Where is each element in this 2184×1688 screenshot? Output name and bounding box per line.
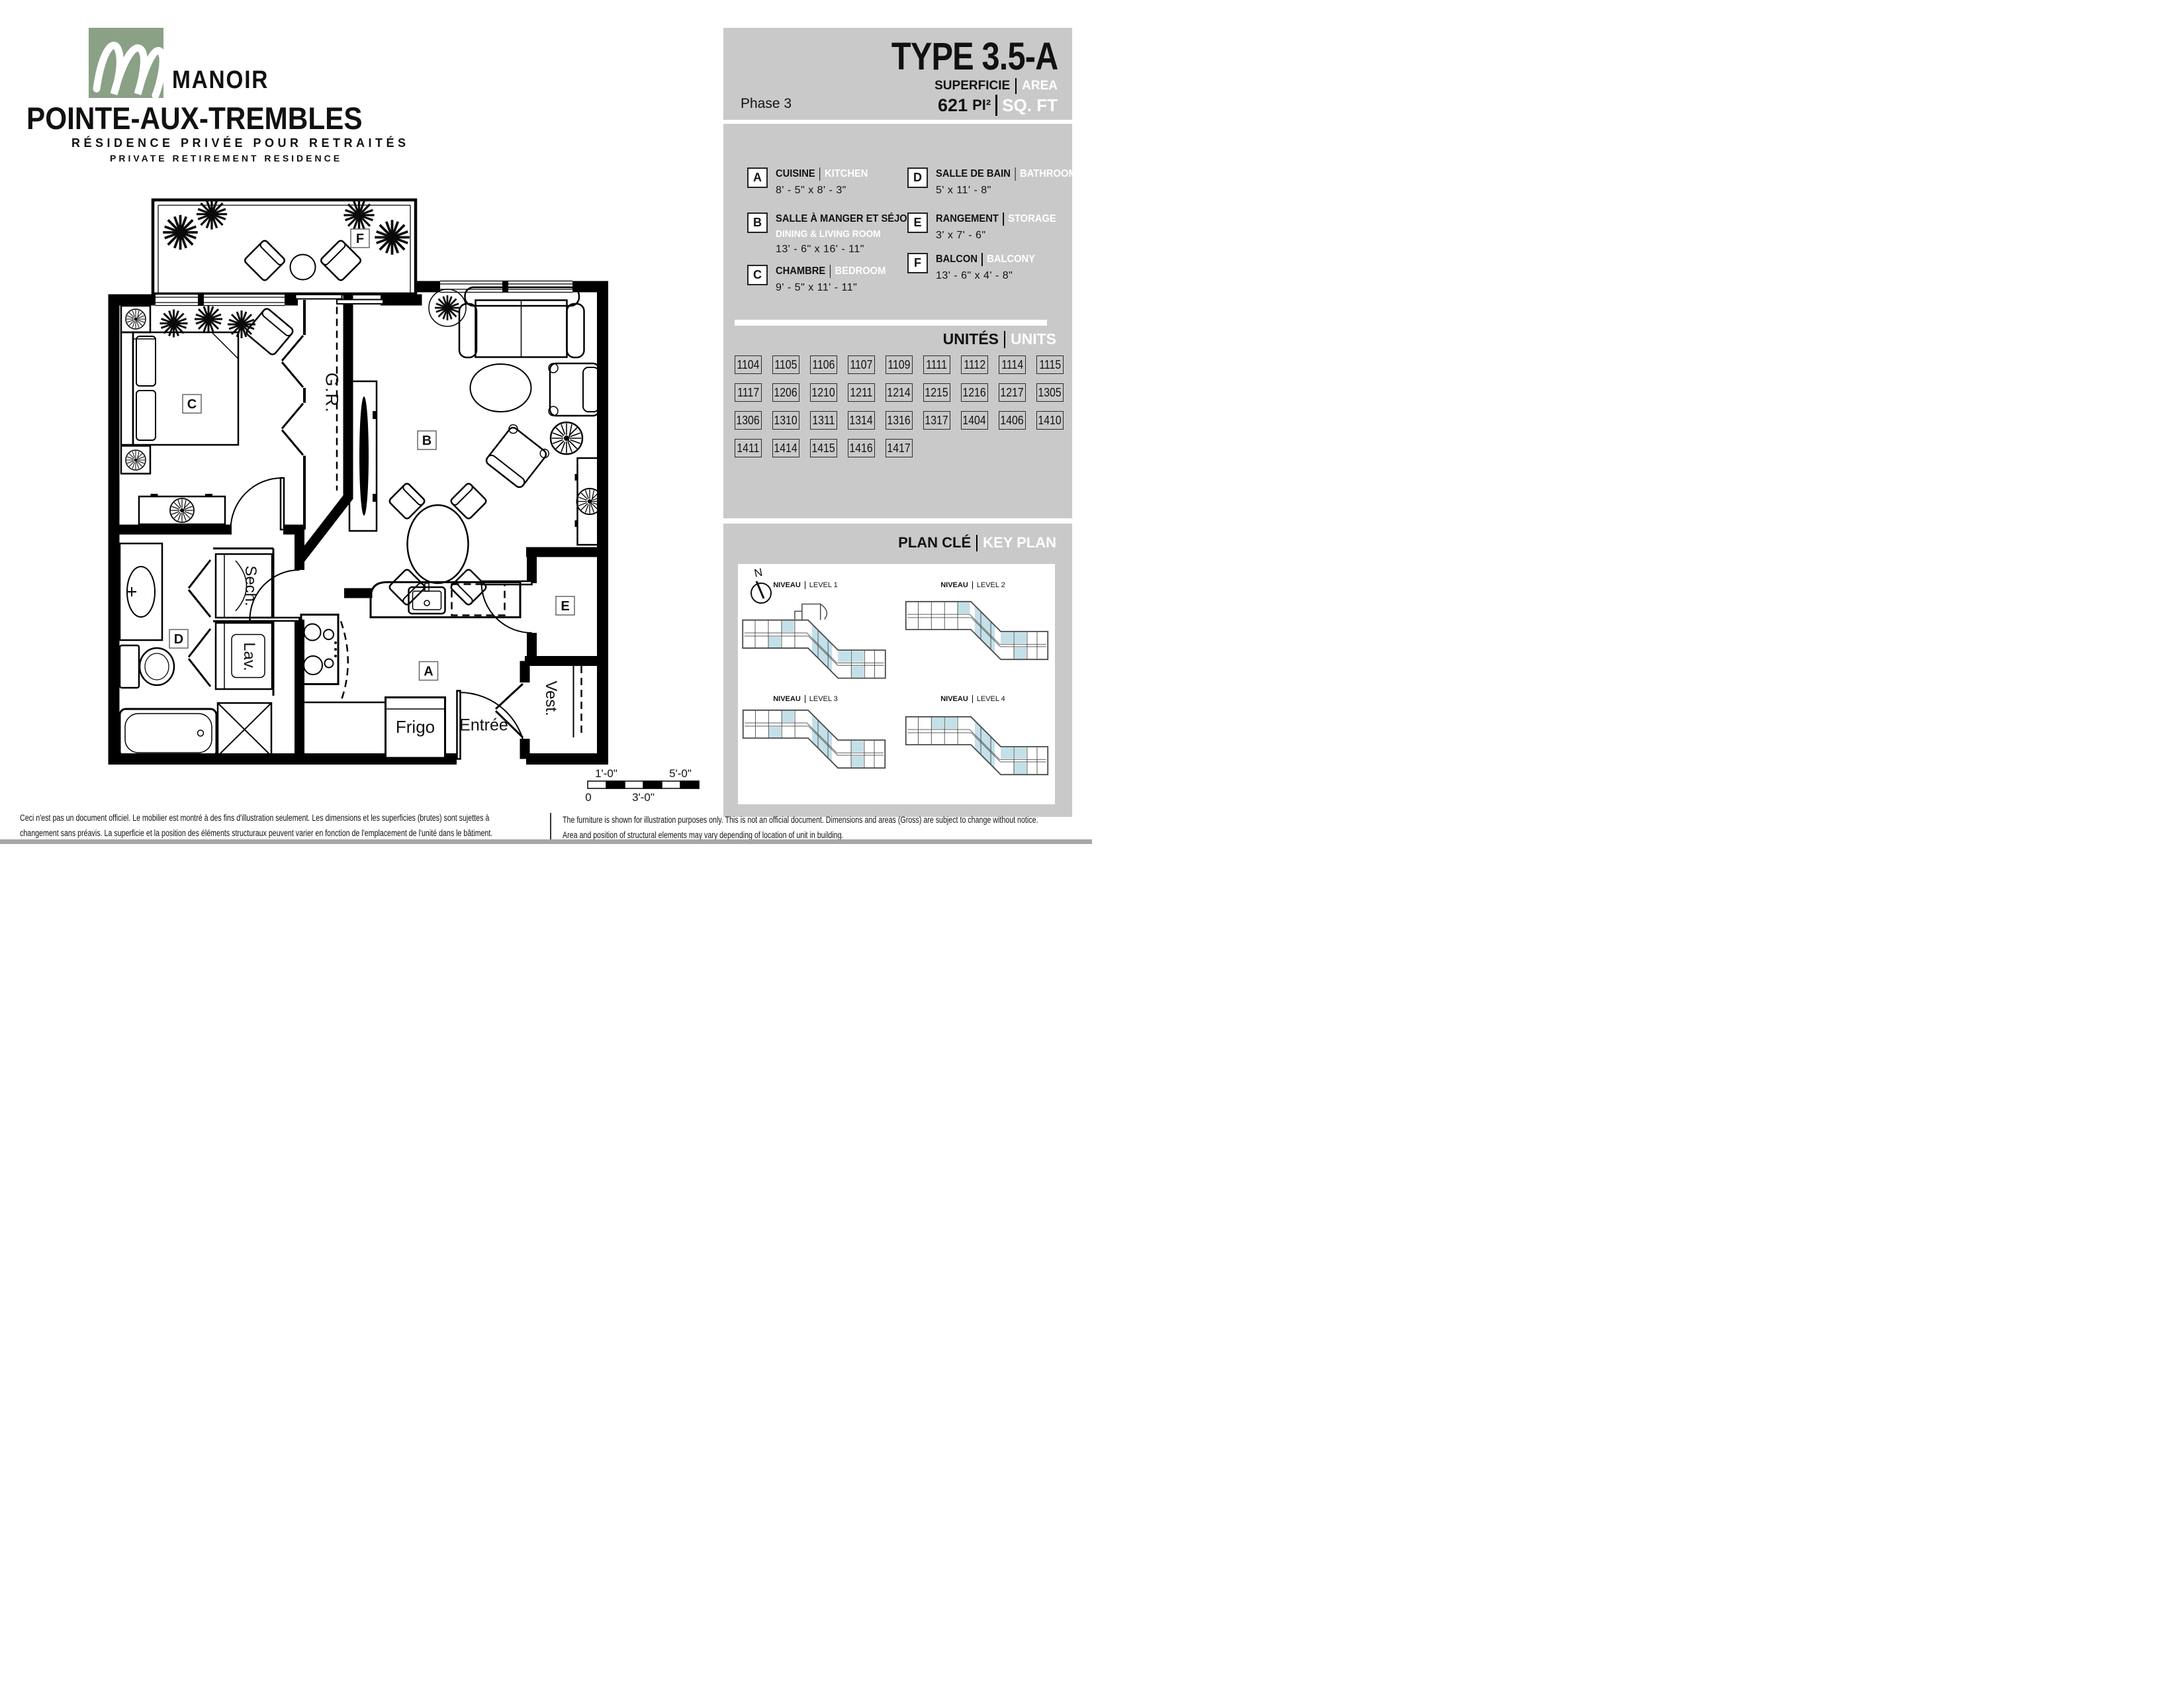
superficie-area-line: SUPERFICIE AREA <box>934 78 1058 94</box>
unit-number: 1411 <box>735 439 762 457</box>
unit-number: 1310 <box>772 411 799 430</box>
level-1-label: NIVEAULEVEL 1 <box>759 581 852 589</box>
patio-table <box>291 255 316 280</box>
key-plan-canvas: N NIVEAULEVEL 1 NIVEAULEVEL 2 NIVEAULEVE… <box>738 564 1055 804</box>
stove-icon <box>301 615 338 684</box>
bottom-edge-strip <box>0 839 1092 844</box>
level-4-label: NIVEAULEVEL 4 <box>927 695 1019 703</box>
divider-bar <box>995 95 997 116</box>
room-label-c: C <box>187 397 197 412</box>
plant-icon <box>435 295 460 320</box>
legend-en: STORAGE <box>1008 213 1056 225</box>
legend-fr: RANGEMENT <box>936 213 999 225</box>
section-divider-bar <box>735 320 1047 326</box>
area-label: AREA <box>1022 79 1058 93</box>
unit-number: 1112 <box>961 355 988 374</box>
unit-number: 1105 <box>772 355 799 374</box>
brand-tagline-fr: RÉSIDENCE PRIVÉE POUR RETRAITÉS <box>71 136 410 150</box>
key-plan-title-fr: PLAN CLÉ <box>898 534 971 551</box>
units-title-en: UNITS <box>1011 330 1056 348</box>
unit-type-title: TYPE 3.5-A <box>891 34 1058 79</box>
disclaimer-en: The furniture is shown for illustration … <box>563 812 1080 843</box>
mirror-icon <box>170 498 194 522</box>
key-plan-title-en: KEY PLAN <box>983 534 1056 551</box>
scale-bar: 1'-0" 5'-0" 0 3'-0" <box>581 765 708 803</box>
disclaimer-en-line1: The furniture is shown for illustration … <box>563 812 1080 827</box>
living-room-furniture <box>349 287 603 606</box>
dresser <box>139 494 225 524</box>
dryer-label: Sech. <box>242 565 259 606</box>
room-label-b: B <box>422 434 432 448</box>
unit-number-grid: 1104110511061107110911111112111411151117… <box>735 355 1066 457</box>
armchair-tilted <box>483 423 551 490</box>
interior-walls <box>109 294 603 759</box>
plant-icon <box>195 305 222 333</box>
level-2-label: NIVEAULEVEL 2 <box>927 581 1019 589</box>
closet-label: G.R. <box>322 373 342 414</box>
disclaimer-fr: Ceci n'est pas un document officiel. Le … <box>20 810 548 841</box>
room-letter-badge: E <box>907 212 928 233</box>
scale-0: 0 <box>585 791 591 803</box>
unit-number: 1410 <box>1036 411 1064 430</box>
area-unit-fr: PI² <box>972 97 991 114</box>
lower-counter <box>301 702 390 757</box>
level-3-label: NIVEAULEVEL 3 <box>759 695 852 703</box>
toilet-icon <box>120 645 174 688</box>
key-plan-panel: PLAN CLÉ KEY PLAN N NIVEAULEVEL 1 NIVEAU… <box>723 524 1072 817</box>
legend-fr: SALLE DE BAIN <box>936 168 1011 180</box>
svg-text:N: N <box>753 567 764 580</box>
washer-label: Lav. <box>240 642 258 671</box>
type-header-panel: TYPE 3.5-A SUPERFICIE AREA Phase 3 621 P… <box>723 28 1072 120</box>
lamp-icon <box>126 309 146 329</box>
unit-number: 1104 <box>735 355 762 374</box>
patio-chair <box>244 240 286 282</box>
area-unit-en: SQ. FT <box>1002 95 1058 116</box>
unit-number: 1215 <box>923 383 950 402</box>
divider-bar <box>1015 78 1017 94</box>
legend-en: DINING & LIVING ROOM <box>776 228 927 240</box>
scale-3ft: 3'-0" <box>632 791 655 803</box>
unit-number: 1406 <box>999 411 1026 430</box>
unit-number: 1206 <box>772 383 799 402</box>
legend-en: KITCHEN <box>825 168 868 180</box>
legend-fr: BALCON <box>936 254 978 265</box>
room-label-e: E <box>561 599 569 614</box>
legend-item-kitchen: A CUISINEKITCHEN 8' - 5" x 8' - 3" <box>747 167 876 197</box>
fridge-label: Frigo <box>396 717 435 737</box>
unit-number: 1106 <box>810 355 837 374</box>
units-section-title: UNITÉS UNITS <box>943 330 1056 348</box>
room-label-f: F <box>356 232 364 246</box>
plant-icon <box>163 215 198 250</box>
armchair <box>549 363 599 416</box>
coffee-table <box>471 364 531 412</box>
entry-label: Entrée <box>459 716 508 735</box>
dashed-lines <box>337 307 582 738</box>
logo-monogram-box <box>89 28 163 98</box>
unit-number: 1216 <box>961 383 988 402</box>
unit-number: 1415 <box>810 439 837 457</box>
room-letter-badge: A <box>747 167 768 188</box>
unit-number: 1404 <box>961 411 988 430</box>
key-plan-level-1 <box>742 592 886 679</box>
legend-item-bathroom: D SALLE DE BAINBATHROOM 5' x 11' - 8" <box>907 167 1089 197</box>
room-letter-badge: F <box>907 253 928 273</box>
unit-number: 1306 <box>735 411 762 430</box>
unit-number: 1210 <box>810 383 837 402</box>
bathtub-icon <box>120 709 216 757</box>
doors <box>189 336 532 759</box>
disclaimer-divider <box>550 813 551 839</box>
key-plan-level-3 <box>742 707 886 771</box>
room-label-a: A <box>424 665 433 679</box>
linen-closet <box>218 703 271 756</box>
legend-item-balcony: F BALCONBALCONY 13' - 6" x 4' - 8" <box>907 253 1044 282</box>
legend-en: BALCONY <box>987 254 1035 265</box>
closet-partitions <box>213 300 304 696</box>
unit-number: 1117 <box>735 383 762 402</box>
area-value-line: 621 PI² SQ. FT <box>938 95 1058 116</box>
unit-number: 1114 <box>999 355 1026 374</box>
units-title-fr: UNITÉS <box>943 330 999 348</box>
legend-units-panel: A CUISINEKITCHEN 8' - 5" x 8' - 3" B SAL… <box>723 124 1072 518</box>
legend-dims: 5' x 11' - 8" <box>936 185 1089 197</box>
unit-number: 1109 <box>886 355 913 374</box>
legend-en: BEDROOM <box>835 265 886 277</box>
floor-plan: F C B D A E G.R. Sech. Lav. Frigo Entrée… <box>99 185 637 782</box>
unit-number: 1316 <box>886 411 913 430</box>
legend-dims: 13' - 6" x 4' - 8" <box>936 270 1044 282</box>
unit-number: 1107 <box>848 355 875 374</box>
disclaimer-fr-line1: Ceci n'est pas un document officiel. Le … <box>20 810 548 825</box>
sofa <box>459 287 584 357</box>
key-plan-level-4 <box>905 714 1049 778</box>
unit-number: 1416 <box>848 439 875 457</box>
lamp-icon <box>126 450 146 470</box>
legend-en: BATHROOM <box>1020 168 1077 180</box>
room-letter-badge: D <box>907 167 928 188</box>
room-letter-badge: B <box>747 212 768 233</box>
unit-number: 1211 <box>848 383 875 402</box>
unit-number: 1417 <box>886 439 913 457</box>
phase-label: Phase 3 <box>741 96 792 112</box>
legend-fr: CUISINE <box>776 168 815 180</box>
unit-number: 1414 <box>772 439 799 457</box>
divider-bar <box>1004 331 1005 348</box>
armchair <box>245 307 294 356</box>
tv-console <box>349 381 377 531</box>
divider-bar <box>976 535 978 551</box>
scale-5ft: 5'-0" <box>669 767 692 780</box>
legend-fr: CHAMBRE <box>776 265 825 277</box>
key-plan-title: PLAN CLÉ KEY PLAN <box>898 534 1056 551</box>
legend-item-bedroom: C CHAMBREBEDROOM 9' - 5" x 11' - 11" <box>747 265 895 294</box>
plant-icon <box>343 200 374 230</box>
plant-icon <box>197 199 227 229</box>
vestibule-label: Vest. <box>542 680 560 716</box>
logo-m-icon <box>89 28 163 98</box>
legend-dims: 3' x 7' - 6" <box>936 230 1066 242</box>
brand-name-line1: MANOIR <box>172 66 269 95</box>
room-label-d: D <box>174 632 183 647</box>
vanity <box>120 543 162 640</box>
balcony <box>153 200 416 294</box>
unit-number: 1311 <box>810 411 837 430</box>
unit-number: 1317 <box>923 411 950 430</box>
legend-dims: 8' - 5" x 8' - 3" <box>776 185 876 197</box>
balcony-furniture <box>163 199 410 281</box>
unit-number: 1305 <box>1036 383 1064 402</box>
disclaimer-fr-line2: changement sans préavis. La superficie e… <box>20 825 548 841</box>
brand-name-line2: POINTE-AUX-TREMBLES <box>26 100 363 136</box>
legend-item-storage: E RANGEMENTSTORAGE 3' x 7' - 6" <box>907 212 1066 242</box>
unit-number: 1111 <box>923 355 950 374</box>
unit-number: 1314 <box>848 411 875 430</box>
bed <box>121 332 238 445</box>
plant-stand-icon <box>551 422 582 454</box>
plant-icon <box>375 220 410 255</box>
unit-number: 1217 <box>999 383 1026 402</box>
legend-fr: SALLE À MANGER ET SÉJOUR <box>776 213 921 225</box>
unit-number: 1214 <box>886 383 913 402</box>
legend-dims: 9' - 5" x 11' - 11" <box>776 282 895 294</box>
superficie-label: SUPERFICIE <box>934 79 1010 93</box>
room-letter-badge: C <box>747 265 768 285</box>
key-plan-level-2 <box>905 598 1049 663</box>
area-value: 621 <box>938 95 968 116</box>
brand-tagline-en: PRIVATE RETIREMENT RESIDENCE <box>110 153 342 164</box>
plan-sheet: MANOIR POINTE-AUX-TREMBLES RÉSIDENCE PRI… <box>0 0 1092 844</box>
unit-number: 1115 <box>1036 355 1064 374</box>
scale-1ft: 1'-0" <box>595 767 617 780</box>
bedroom-furniture <box>121 305 295 524</box>
